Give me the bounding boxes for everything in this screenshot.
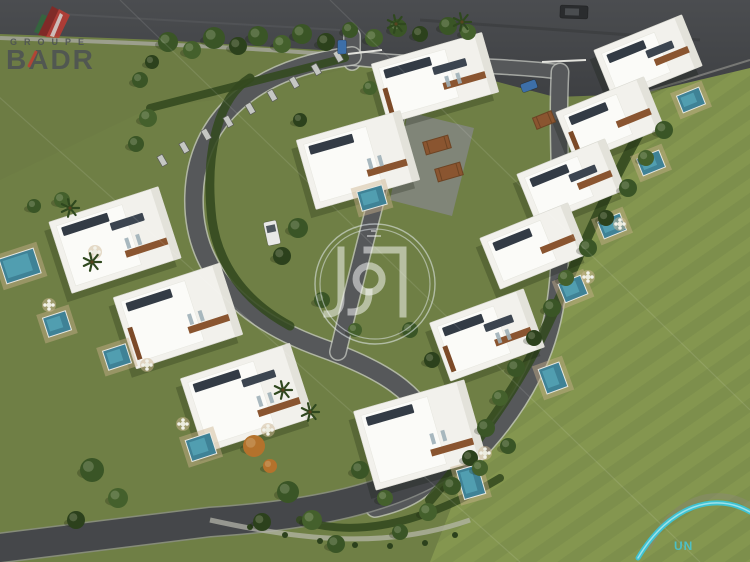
patio-furniture [261,423,275,437]
patio-furniture [613,217,627,231]
corner-swoosh-logo: UN [634,470,750,562]
corner-logo-text: UN [674,539,693,553]
patio-furniture [176,417,190,431]
blue-car [338,40,347,54]
building-logo-icon [28,2,72,38]
dark-car [560,5,588,19]
badr-label: BADR [6,44,95,76]
patio-furniture [140,358,154,372]
swoosh-arc-icon [638,503,750,558]
patio-furniture [42,298,56,312]
aerial-villa-compound-render: GROUPE BADR UN [0,0,750,562]
arabic-kufic-monogram-icon [305,214,445,354]
patio-furniture [581,270,595,284]
patio-furniture [478,446,492,460]
groupe-badr-watermark: GROUPE BADR [4,0,144,92]
